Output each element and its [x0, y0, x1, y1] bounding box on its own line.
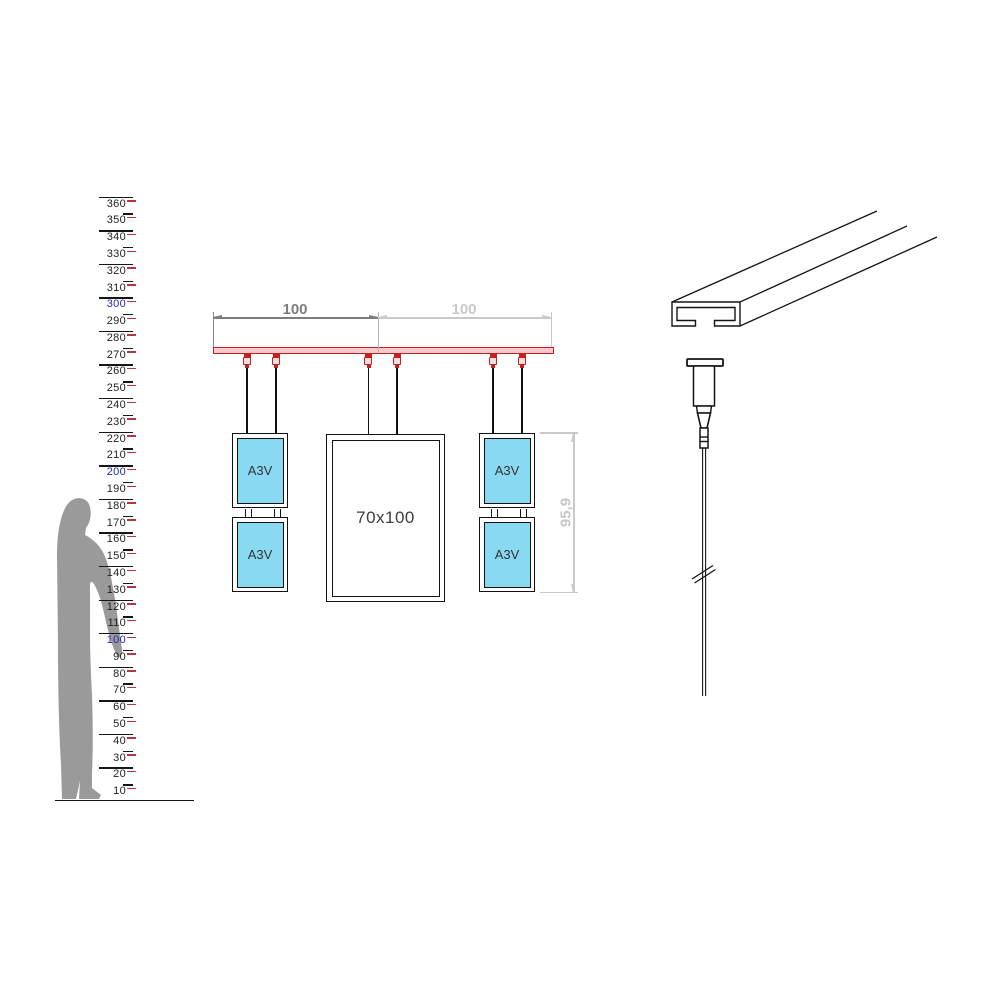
ruler-number-80: 80: [86, 669, 126, 679]
ruler-red-tick: [127, 603, 136, 604]
ruler-number-110: 110: [86, 618, 126, 628]
ruler-red-tick: [127, 418, 136, 419]
suspension-wire: [396, 366, 397, 434]
poster-panel-70x100: 70x100: [332, 440, 440, 597]
ruler-red-tick: [127, 200, 136, 201]
ruler-red-tick: [127, 536, 136, 537]
a3v-panel-right-bottom: A3V: [484, 522, 531, 588]
ruler-red-tick: [127, 687, 136, 688]
arrow-right-light-icon: [542, 315, 551, 319]
ruler-red-tick: [127, 771, 136, 772]
rail-profile-isometric-icon: [650, 190, 950, 340]
rail-clip: [364, 357, 372, 365]
ruler-red-tick: [127, 670, 136, 671]
suspension-wire: [275, 366, 276, 433]
ruler-red-tick: [127, 301, 136, 302]
ruler-red-tick: [127, 351, 136, 352]
clip-tip: [395, 365, 399, 368]
ruler-number-40: 40: [86, 736, 126, 746]
ruler-red-tick: [127, 721, 136, 722]
ruler-number-200: 200: [86, 467, 126, 477]
clip-tip: [491, 365, 495, 368]
rail-clip: [272, 357, 280, 365]
ruler-number-300: 300: [86, 299, 126, 309]
ruler-red-tick: [127, 570, 136, 571]
panel-connector: [491, 509, 498, 518]
suspension-wire: [521, 366, 522, 433]
ruler-number-60: 60: [86, 702, 126, 712]
ruler-red-tick: [127, 318, 136, 319]
ruler-red-tick: [127, 385, 136, 386]
rail-clip: [393, 357, 401, 365]
ruler-red-tick: [127, 435, 136, 436]
ruler-red-tick: [127, 267, 136, 268]
suspension-wire: [368, 366, 369, 434]
panel-connector: [274, 509, 281, 518]
suspension-wire: [492, 366, 493, 433]
ruler-number-160: 160: [86, 534, 126, 544]
dimension-label-left-span: 100: [270, 302, 320, 317]
ruler-number-30: 30: [86, 753, 126, 763]
ruler-number-210: 210: [86, 450, 126, 460]
ruler-number-140: 140: [86, 568, 126, 578]
ruler-number-230: 230: [86, 417, 126, 427]
ruler-number-150: 150: [86, 551, 126, 561]
ruler-red-tick: [127, 620, 136, 621]
ruler-red-tick: [127, 334, 136, 335]
a3v-panel-left-bottom: A3V: [237, 522, 284, 588]
ruler-number-190: 190: [86, 484, 126, 494]
rail-clip: [518, 357, 526, 365]
ruler-number-170: 170: [86, 518, 126, 528]
ruler-number-260: 260: [86, 366, 126, 376]
ruler-number-330: 330: [86, 249, 126, 259]
arrow-up-light-icon: [571, 433, 575, 442]
clip-tip: [274, 365, 278, 368]
ruler-red-tick: [127, 754, 136, 755]
ruler-red-tick: [127, 217, 136, 218]
clip-tip: [367, 365, 371, 368]
ruler-number-20: 20: [86, 769, 126, 779]
ruler-number-350: 350: [86, 215, 126, 225]
arrow-left-icon: [213, 315, 222, 319]
clip-tip: [520, 365, 524, 368]
ruler-number-240: 240: [86, 400, 126, 410]
ruler-red-tick: [127, 452, 136, 453]
ruler-red-tick: [127, 553, 136, 554]
ruler-number-280: 280: [86, 333, 126, 343]
technical-drawing-canvas: 3603503403303203103002902802702602502402…: [0, 0, 1000, 1000]
ruler-red-tick: [127, 402, 136, 403]
ground-baseline: [55, 800, 194, 802]
arrow-right-icon: [369, 315, 378, 319]
ruler-number-180: 180: [86, 501, 126, 511]
ruler-number-310: 310: [86, 283, 126, 293]
ruler-number-360: 360: [86, 199, 126, 209]
rail-clip: [243, 357, 251, 365]
ruler-red-tick: [127, 251, 136, 252]
arrow-left-light-icon: [378, 315, 387, 319]
panel-connector: [520, 509, 527, 518]
a3v-panel-left-top: A3V: [237, 438, 284, 504]
ruler-red-tick: [127, 368, 136, 369]
ruler-number-290: 290: [86, 316, 126, 326]
ruler-red-tick: [127, 502, 136, 503]
ruler-number-70: 70: [86, 685, 126, 695]
ruler-number-340: 340: [86, 232, 126, 242]
rail-clip: [489, 357, 497, 365]
ruler-red-tick: [127, 519, 136, 520]
ruler-red-tick: [127, 653, 136, 654]
ruler-number-270: 270: [86, 350, 126, 360]
ruler-number-320: 320: [86, 266, 126, 276]
ceiling-rail: [213, 347, 554, 355]
dimension-label-stack-height: 95,9: [559, 493, 574, 533]
ruler-red-tick: [127, 486, 136, 487]
suspension-wire: [246, 366, 247, 433]
a3v-panel-right-top: A3V: [484, 438, 531, 504]
panel-connector: [245, 509, 252, 518]
ruler-number-220: 220: [86, 434, 126, 444]
dimension-label-right-span: 100: [439, 302, 489, 317]
ruler-red-tick: [127, 284, 136, 285]
clip-tip: [245, 365, 249, 368]
ruler-red-tick: [127, 586, 136, 587]
ruler-number-90: 90: [86, 652, 126, 662]
cable-hanger-detail-icon: [640, 350, 760, 710]
ruler-red-tick: [127, 788, 136, 789]
ruler-red-tick: [127, 637, 136, 638]
ruler-number-100: 100: [86, 635, 126, 645]
ruler-number-250: 250: [86, 383, 126, 393]
ruler-number-120: 120: [86, 602, 126, 612]
ruler-red-tick: [127, 234, 136, 235]
ruler-number-130: 130: [86, 585, 126, 595]
ruler-red-tick: [127, 469, 136, 470]
ruler-red-tick: [127, 704, 136, 705]
ruler-number-10: 10: [86, 786, 126, 796]
arrow-down-light-icon: [571, 584, 575, 593]
ruler-red-tick: [127, 737, 136, 738]
ruler-number-50: 50: [86, 719, 126, 729]
